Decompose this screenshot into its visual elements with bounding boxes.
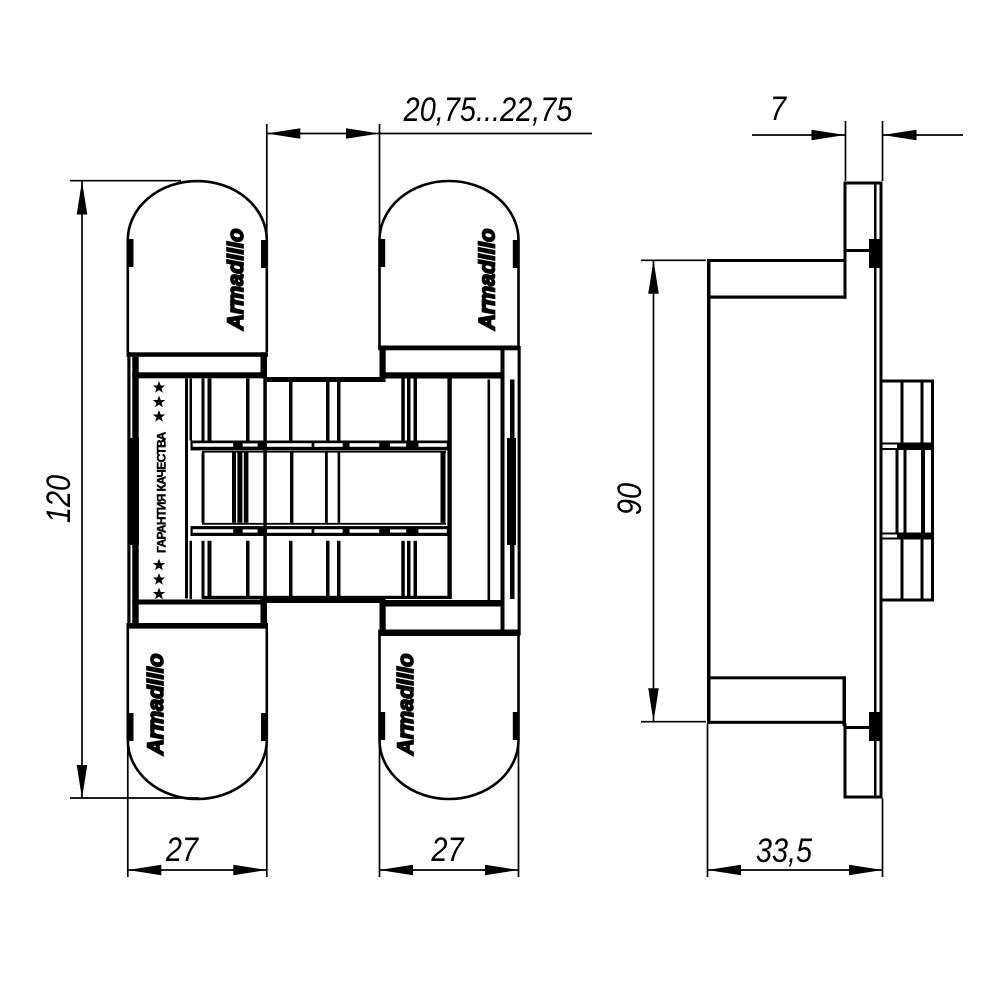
svg-text:27: 27	[431, 830, 465, 869]
svg-text:33,5: 33,5	[756, 831, 813, 870]
svg-text:Armadillo: Armadillo	[393, 654, 418, 756]
svg-text:7: 7	[770, 89, 787, 128]
svg-text:Armadillo: Armadillo	[475, 229, 500, 331]
svg-text:27: 27	[165, 830, 199, 869]
svg-text:90: 90	[610, 483, 649, 516]
svg-text:20,75...22,75: 20,75...22,75	[403, 90, 573, 129]
svg-text:ГАРАНТИЯ КАЧЕСТВА: ГАРАНТИЯ КАЧЕСТВА	[155, 431, 169, 553]
svg-text:Armadillo: Armadillo	[223, 229, 248, 331]
svg-text:120: 120	[39, 474, 78, 523]
svg-text:Armadillo: Armadillo	[143, 654, 168, 756]
